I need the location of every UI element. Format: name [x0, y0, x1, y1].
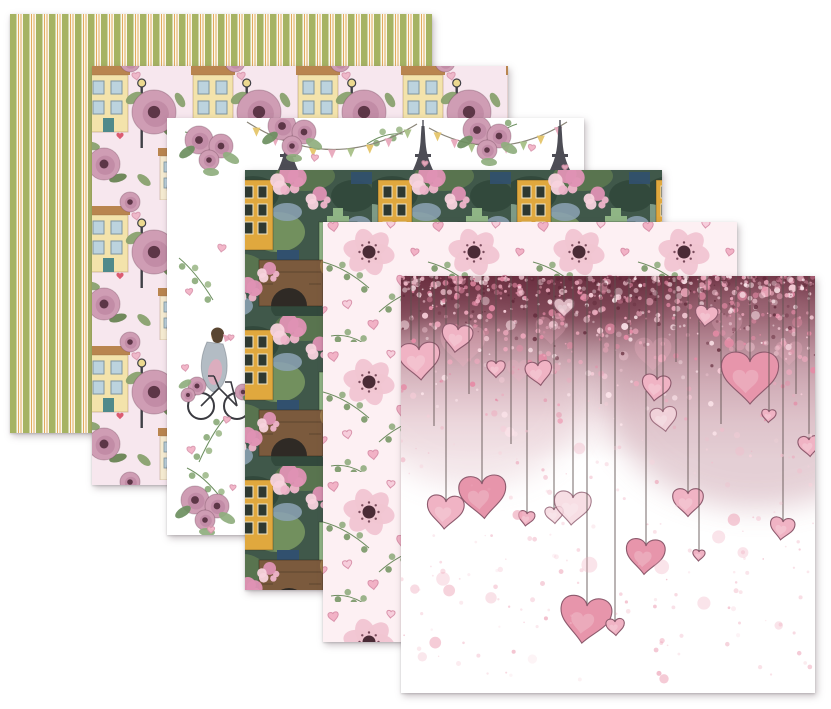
- paper-hanging-hearts: [401, 276, 815, 693]
- hanging-hearts-art: [401, 276, 815, 693]
- paper-stack-scene: [0, 0, 831, 709]
